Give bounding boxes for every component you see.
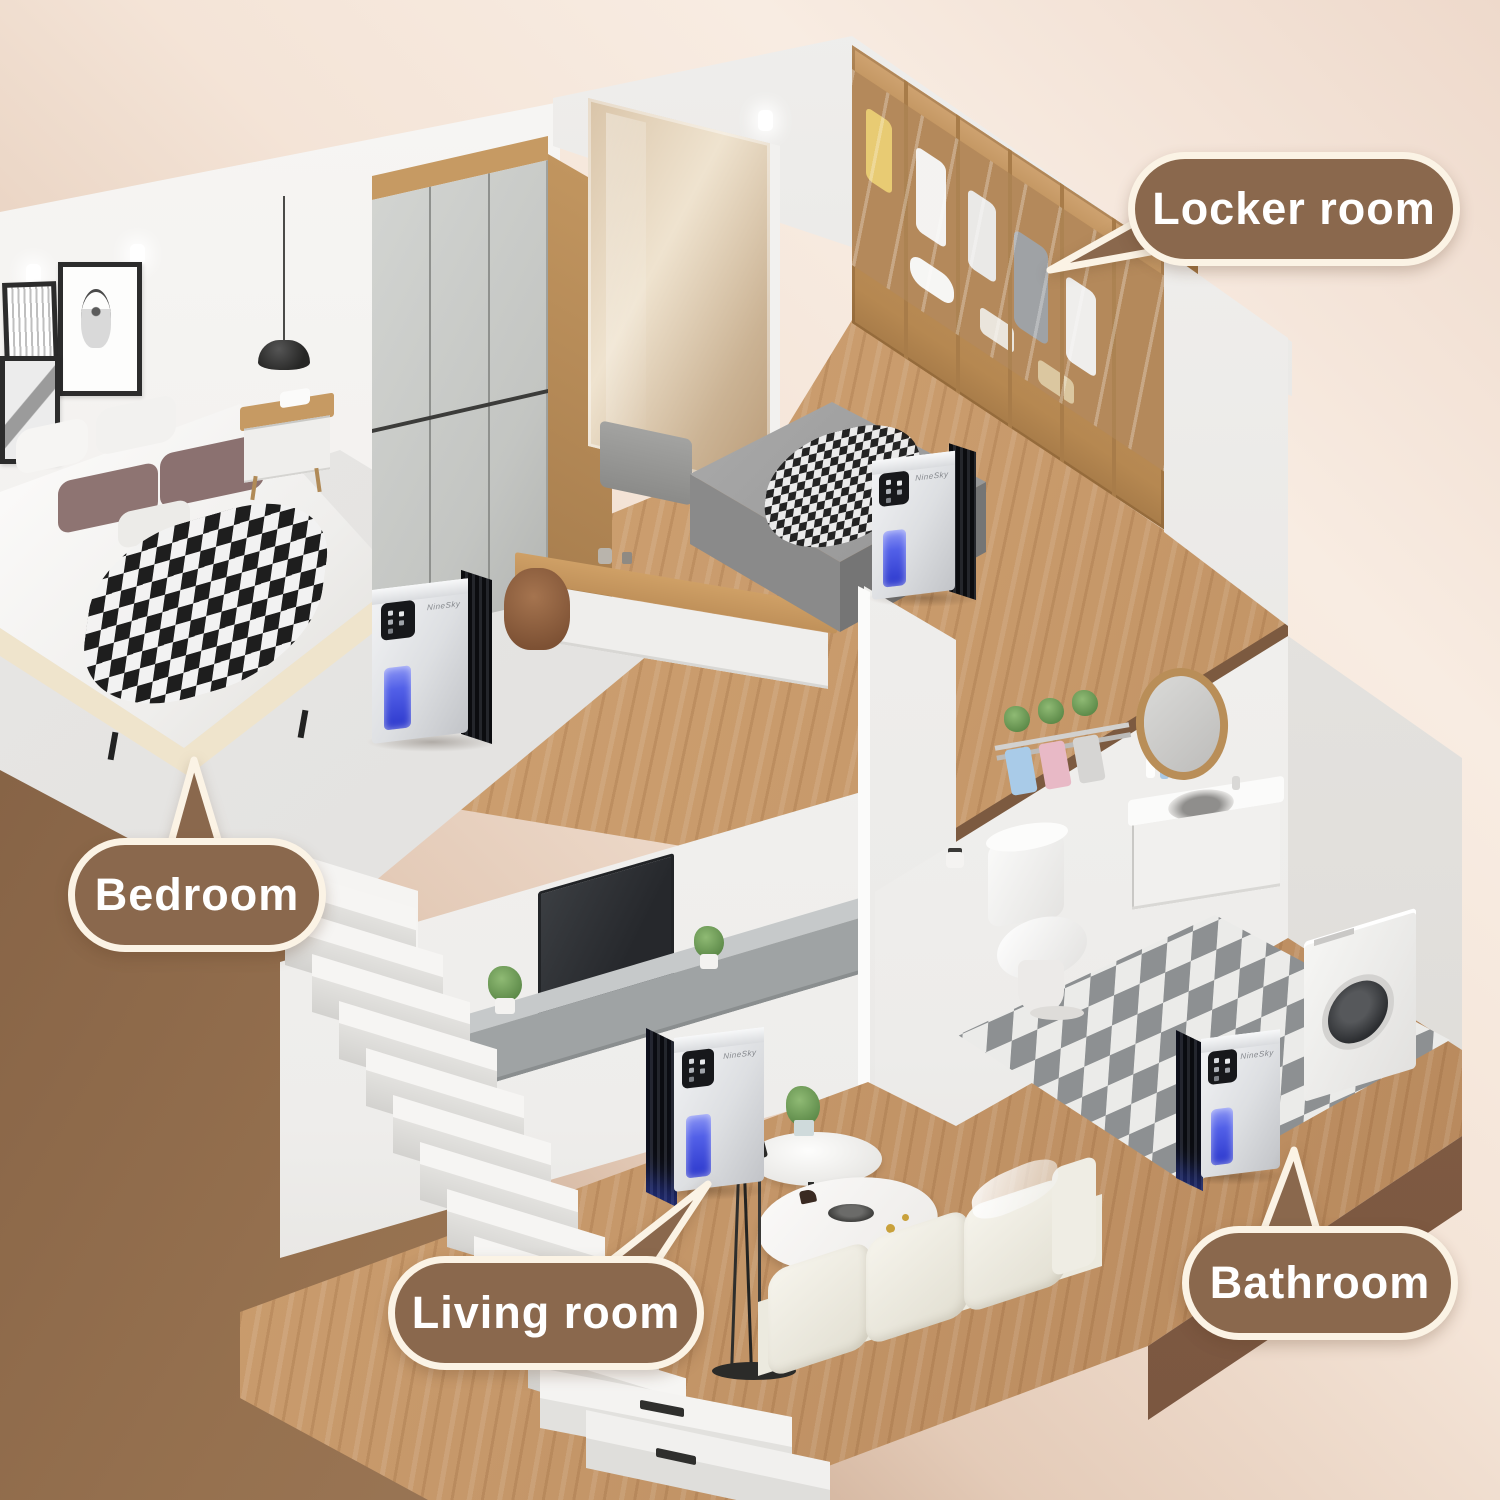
- wall-art-deer: [58, 262, 142, 396]
- pendant-lamp-shade: [258, 340, 310, 370]
- decor-bowl: [828, 1204, 874, 1222]
- living-room-label-tail: [596, 1180, 714, 1268]
- table-plant-pot: [794, 1120, 814, 1136]
- water-tank-window: [1211, 1107, 1233, 1165]
- water-tank-window: [686, 1113, 711, 1178]
- shelf-plant: [1072, 690, 1098, 716]
- bedroom-label: Bedroom: [68, 838, 326, 952]
- dehumidifier-bedroom: NineSky: [372, 580, 492, 744]
- control-buttons-icon: [689, 1058, 694, 1064]
- towel-pink: [1038, 740, 1072, 790]
- device-brand-logo: NineSky: [915, 470, 948, 483]
- washing-machine: [1300, 920, 1430, 1130]
- bathroom-label-text: Bathroom: [1210, 1257, 1431, 1309]
- device-control-panel: [879, 470, 909, 507]
- living-room-label-text: Living room: [412, 1287, 681, 1339]
- shelf-plant: [1038, 698, 1064, 724]
- shelf-plant: [1004, 706, 1030, 732]
- plant-pot: [495, 998, 515, 1014]
- toilet-paper-holder: [946, 852, 964, 868]
- locker-room-label: Locker room: [1128, 152, 1460, 266]
- bathroom-label-tail: [1252, 1146, 1326, 1238]
- living-room-label: Living room: [388, 1256, 704, 1370]
- control-buttons-icon: [1214, 1057, 1219, 1063]
- desk-items: [598, 548, 612, 564]
- faucet: [1232, 776, 1240, 790]
- control-buttons-icon: [886, 479, 891, 485]
- nightstand: [240, 392, 350, 502]
- device-brand-logo: NineSky: [1240, 1048, 1273, 1061]
- device-brand-logo: NineSky: [427, 599, 460, 612]
- decor-gold-dot: [902, 1214, 909, 1221]
- sofa-armrest: [1052, 1155, 1096, 1277]
- bed-leg: [108, 732, 119, 761]
- towel-blue: [1004, 746, 1038, 796]
- locker-room-label-text: Locker room: [1152, 183, 1436, 235]
- bedroom-label-tail: [158, 756, 232, 850]
- bedroom-label-text: Bedroom: [95, 869, 300, 921]
- towel-shelf: [994, 690, 1154, 810]
- dehumidifier-locker-room: NineSky: [872, 452, 976, 600]
- towel-gray: [1072, 734, 1106, 784]
- device-control-panel: [1208, 1048, 1236, 1085]
- water-tank-window: [384, 665, 411, 730]
- desk-chair: [504, 568, 570, 650]
- toilet: [960, 820, 1100, 1020]
- plant: [488, 966, 522, 1002]
- house-cutaway-scene: NineSky NineSky NineSky NineS: [0, 0, 1500, 1500]
- device-control-panel: [381, 600, 416, 641]
- plant-pot: [700, 954, 718, 969]
- bed-leg: [298, 710, 309, 739]
- pendant-lamp-cord: [283, 196, 285, 346]
- bathroom-label: Bathroom: [1182, 1226, 1458, 1340]
- device-brand-logo: NineSky: [724, 1048, 757, 1061]
- water-tank-window: [883, 529, 906, 587]
- control-buttons-icon: [388, 610, 393, 616]
- device-control-panel: [682, 1048, 714, 1089]
- dehumidifier-living-room: NineSky: [646, 1028, 764, 1192]
- wall-light: [758, 110, 773, 131]
